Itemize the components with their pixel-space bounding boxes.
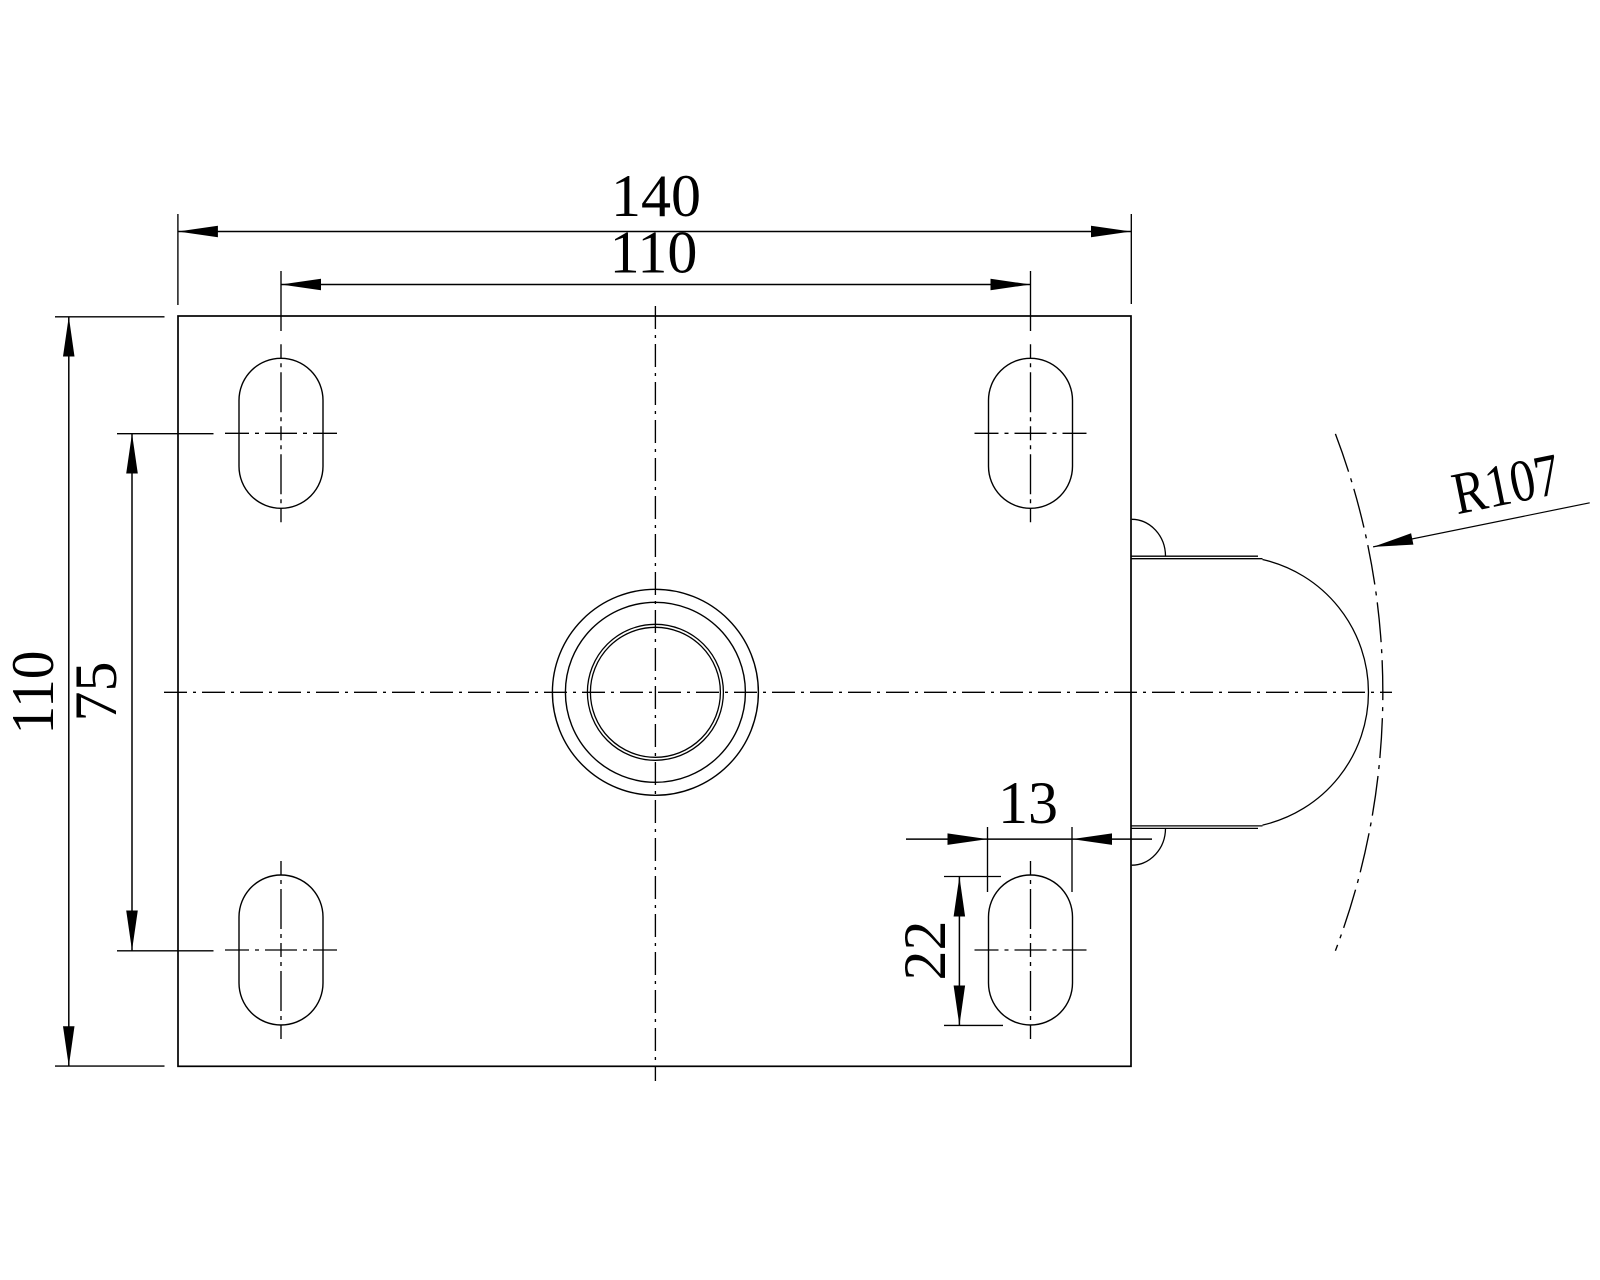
svg-text:13: 13 bbox=[998, 770, 1058, 836]
svg-text:75: 75 bbox=[63, 662, 129, 722]
svg-text:110: 110 bbox=[0, 651, 66, 735]
svg-text:110: 110 bbox=[610, 220, 698, 286]
svg-text:22: 22 bbox=[892, 921, 958, 981]
